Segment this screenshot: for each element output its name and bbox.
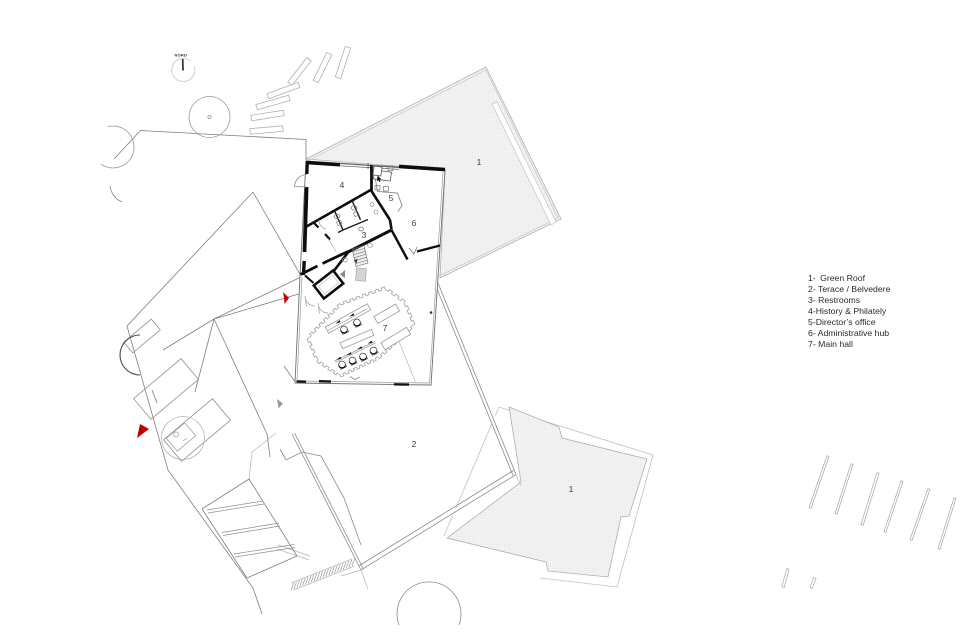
svg-text:7: 7	[383, 323, 388, 333]
svg-text:2- Terace / Belvedere: 2- Terace / Belvedere	[808, 284, 891, 294]
svg-text:7- Main hall: 7- Main hall	[808, 339, 853, 349]
svg-text:1: 1	[569, 484, 574, 494]
svg-text:4: 4	[340, 180, 345, 190]
svg-text:NORD: NORD	[175, 53, 188, 58]
svg-text:1- Green Roof: 1- Green Roof	[808, 273, 866, 283]
svg-text:3- Restrooms: 3- Restrooms	[808, 295, 861, 305]
svg-text:6: 6	[412, 218, 417, 228]
svg-text:4-History & Philately: 4-History & Philately	[808, 306, 887, 316]
svg-text:5-Director’s office: 5-Director’s office	[808, 317, 876, 327]
svg-text:3: 3	[362, 230, 367, 240]
svg-text:1: 1	[477, 157, 482, 167]
svg-text:5: 5	[389, 193, 394, 203]
svg-text:2: 2	[412, 439, 417, 449]
svg-text:6- Administrative hub: 6- Administrative hub	[808, 328, 889, 338]
